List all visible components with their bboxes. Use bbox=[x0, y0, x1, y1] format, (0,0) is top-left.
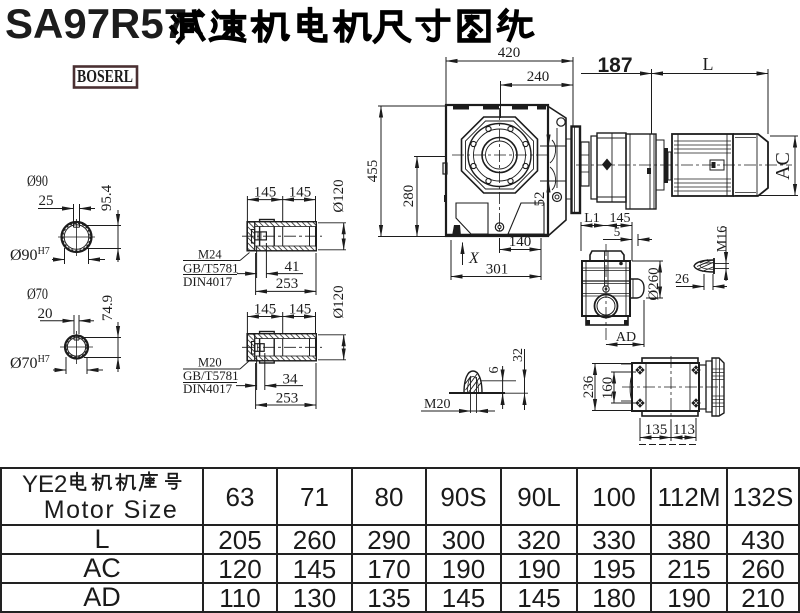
svg-text:Ø70H7: Ø70H7 bbox=[10, 354, 50, 372]
svg-text:140: 140 bbox=[509, 234, 532, 250]
svg-text:113: 113 bbox=[673, 422, 695, 438]
svg-text:95.4: 95.4 bbox=[99, 184, 115, 211]
svg-text:455: 455 bbox=[365, 160, 381, 183]
svg-text:AD: AD bbox=[616, 330, 636, 345]
svg-text:M20: M20 bbox=[424, 397, 450, 412]
svg-text:M24: M24 bbox=[198, 248, 222, 262]
svg-text:26: 26 bbox=[675, 272, 689, 287]
svg-text:32: 32 bbox=[511, 348, 526, 362]
svg-text:420: 420 bbox=[498, 45, 521, 61]
svg-text:DIN4017: DIN4017 bbox=[183, 381, 233, 396]
svg-text:YE2: YE2 bbox=[22, 471, 67, 498]
svg-text:X: X bbox=[468, 250, 480, 267]
svg-text:253: 253 bbox=[276, 391, 299, 407]
svg-text:DIN4017: DIN4017 bbox=[183, 274, 233, 289]
svg-text:135: 135 bbox=[645, 422, 668, 438]
svg-text:M16: M16 bbox=[715, 226, 730, 252]
svg-text:L: L bbox=[703, 54, 714, 74]
svg-text:41: 41 bbox=[285, 259, 300, 275]
svg-text:Ø90: Ø90 bbox=[27, 173, 48, 190]
svg-text:Ø70: Ø70 bbox=[27, 286, 48, 303]
svg-text:SA97R57: SA97R57 bbox=[5, 0, 187, 47]
svg-text:AC: AC bbox=[772, 152, 794, 180]
svg-text:25: 25 bbox=[39, 193, 54, 209]
svg-text:Ø90H7: Ø90H7 bbox=[10, 246, 50, 264]
svg-text:5: 5 bbox=[614, 224, 621, 239]
svg-text:280: 280 bbox=[401, 185, 417, 208]
svg-text:20: 20 bbox=[38, 306, 53, 322]
svg-text:253: 253 bbox=[276, 276, 299, 292]
svg-text:145: 145 bbox=[289, 185, 312, 201]
svg-text:Ø120: Ø120 bbox=[331, 179, 347, 212]
svg-text:Ø120: Ø120 bbox=[331, 285, 347, 318]
svg-text:240: 240 bbox=[527, 69, 550, 85]
svg-text:52: 52 bbox=[532, 192, 548, 207]
svg-text:Motor Size: Motor Size bbox=[43, 496, 177, 520]
svg-text:145: 145 bbox=[289, 302, 312, 318]
svg-text:BOSERL: BOSERL bbox=[77, 66, 133, 86]
svg-text:145: 145 bbox=[254, 302, 277, 318]
svg-text:74.9: 74.9 bbox=[100, 295, 116, 321]
svg-text:145: 145 bbox=[254, 185, 277, 201]
svg-text:6: 6 bbox=[487, 367, 502, 374]
svg-text:301: 301 bbox=[486, 262, 509, 278]
svg-text:L1: L1 bbox=[584, 211, 600, 226]
